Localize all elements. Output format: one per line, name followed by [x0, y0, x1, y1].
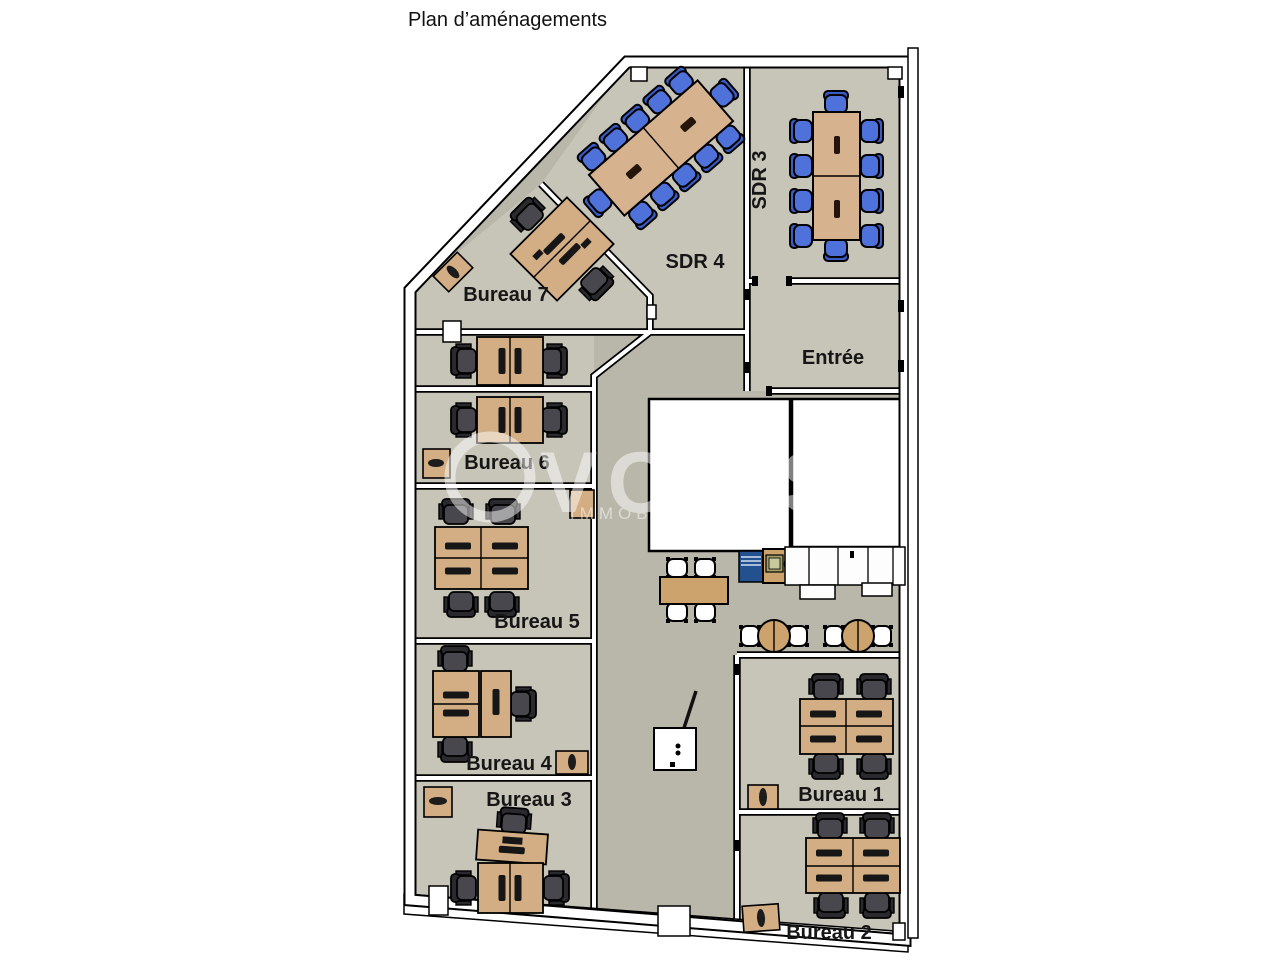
chair-icon: [790, 224, 812, 248]
chair-icon: [542, 344, 567, 378]
break-table: [660, 577, 728, 604]
chair-icon: [444, 592, 478, 617]
chair-icon: [860, 813, 894, 838]
room-label-sdr3: SDR 3: [749, 151, 771, 210]
annex-desk-set: [451, 337, 567, 385]
chair-icon: [439, 499, 473, 524]
chair-icon: [542, 403, 567, 437]
floor-plan-svg: Plan d’aménagements: [0, 0, 1280, 960]
floor-plan-page: Plan d’aménagements: [0, 0, 1280, 960]
chair-icon: [666, 557, 688, 579]
chair-icon: [813, 813, 847, 838]
adjacent-wall-strip: [908, 48, 918, 938]
chair-icon: [486, 499, 520, 524]
chair-icon: [451, 871, 476, 905]
chair-icon: [438, 646, 472, 671]
chair-icon: [790, 119, 812, 143]
chair-icon: [857, 674, 891, 699]
room-label-bureau7: Bureau 7: [463, 284, 549, 306]
room-label-bureau6: Bureau 6: [464, 452, 550, 474]
chair-icon: [544, 871, 569, 905]
chair-icon: [824, 239, 848, 261]
chair-icon: [824, 91, 848, 113]
room-entree: [747, 281, 905, 391]
room-label-bureau1: Bureau 1: [798, 784, 884, 806]
void-room-left: [649, 399, 790, 551]
room-label-bureau5: Bureau 5: [494, 611, 580, 633]
appliance-blue: [739, 551, 763, 582]
chair-icon: [814, 893, 848, 918]
chair-icon: [861, 224, 883, 248]
chair-icon: [511, 687, 536, 721]
under-counter-box: [862, 583, 892, 596]
cabinet: [570, 490, 594, 518]
room-label-bureau4: Bureau 4: [466, 753, 552, 775]
page-title: Plan d’aménagements: [408, 9, 607, 31]
under-counter-box: [800, 585, 835, 599]
chair-icon: [809, 754, 843, 779]
chair-icon: [790, 154, 812, 178]
chair-icon: [861, 119, 883, 143]
chair-icon: [809, 674, 843, 699]
room-label-bureau3: Bureau 3: [486, 789, 572, 811]
cabinet-run: [785, 547, 905, 585]
room-label-bureau2: Bureau 2: [786, 922, 872, 944]
void-room-right: [792, 399, 901, 547]
room-label-sdr4: SDR 4: [666, 251, 726, 273]
chair-icon: [861, 154, 883, 178]
chair-icon: [861, 189, 883, 213]
chair-icon: [451, 344, 476, 378]
room-label-entree: Entrée: [802, 347, 864, 369]
chair-icon: [451, 403, 476, 437]
chair-icon: [857, 754, 891, 779]
chair-icon: [694, 557, 716, 579]
chair-icon: [790, 189, 812, 213]
chair-icon: [860, 893, 894, 918]
